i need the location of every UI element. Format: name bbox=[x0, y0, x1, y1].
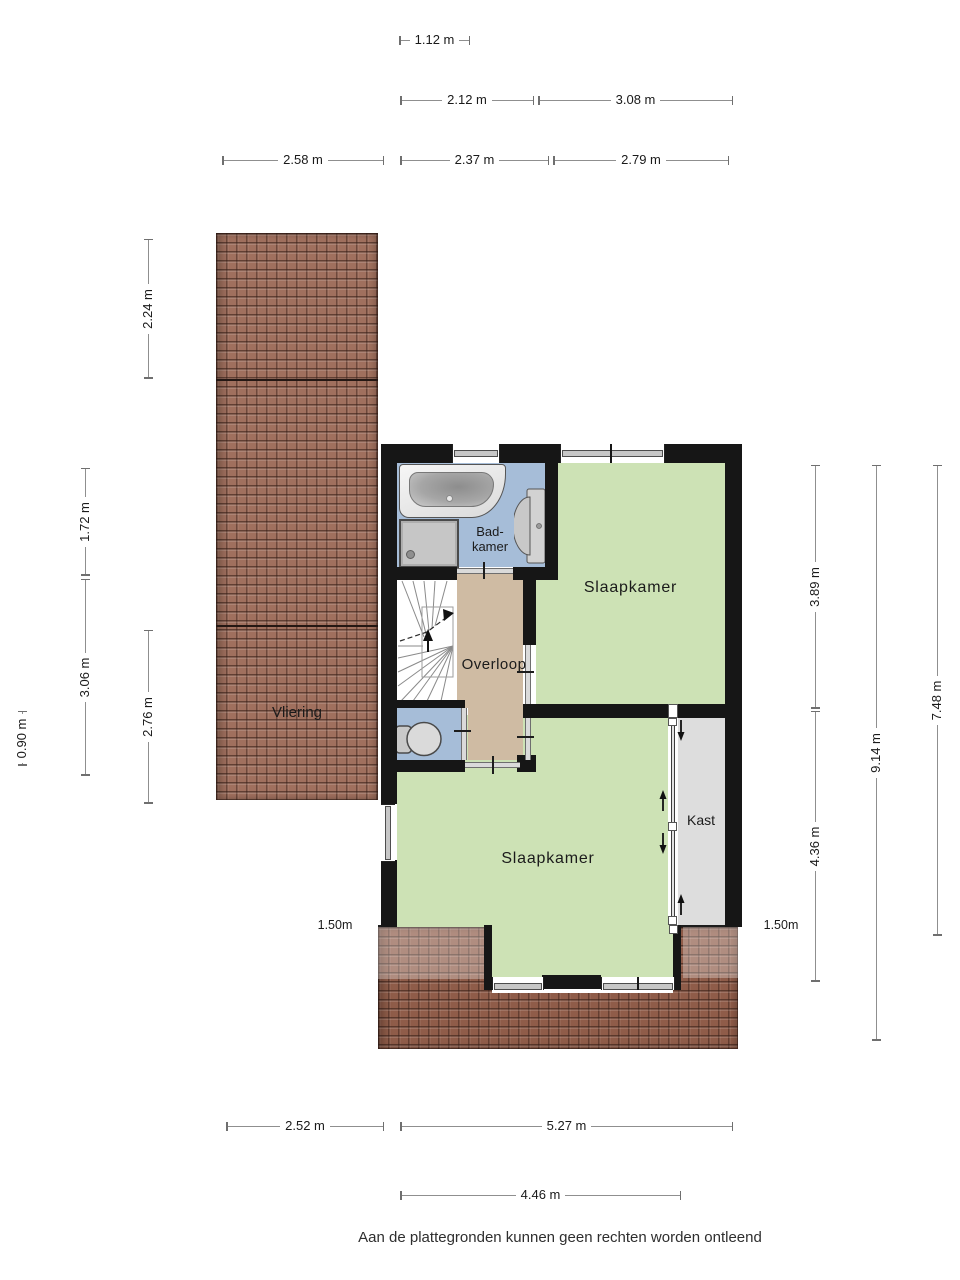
wall-badkamer-right bbox=[545, 463, 558, 580]
wall-toilet-bottom bbox=[381, 760, 465, 772]
room-label-kast: Kast bbox=[677, 812, 725, 828]
room-label-slaapkamer-boven: Slaapkamer bbox=[536, 579, 725, 597]
door-jamb-tick bbox=[483, 562, 485, 579]
room-label-vliering: Vliering bbox=[216, 704, 378, 721]
wall-left-upper bbox=[381, 444, 397, 804]
wall-right bbox=[725, 444, 742, 927]
dim-left-224: 2.24 m bbox=[142, 239, 154, 379]
wall-left-lower bbox=[381, 860, 397, 927]
dim-bottom-252: 2.52 m bbox=[226, 1120, 384, 1132]
slaapkamer-boven-door-opening bbox=[525, 645, 531, 704]
badkamer-window bbox=[452, 444, 500, 463]
dim-top-112: 1.12 m bbox=[399, 34, 470, 46]
dim-top-258: 2.58 m bbox=[222, 154, 384, 166]
room-label-overloop: Overloop bbox=[438, 656, 550, 673]
wall-bedroom-divider bbox=[523, 704, 742, 718]
dim-right-436: 4.36 m bbox=[809, 711, 821, 982]
bay-window-left bbox=[492, 977, 544, 990]
wall-badkamer-bottom-left bbox=[397, 567, 457, 580]
room-label-badkamer-line1: Bad- bbox=[443, 524, 537, 539]
room-slaapkamer-beneden-bay-floor bbox=[492, 925, 673, 977]
door-jamb-tick bbox=[517, 736, 534, 738]
dim-left-090: 0.90 m bbox=[16, 711, 28, 766]
room-label-slaapkamer-beneden: Slaapkamer bbox=[407, 850, 689, 868]
dim-left-276: 2.76 m bbox=[142, 630, 154, 804]
wall-overloop-right bbox=[523, 580, 536, 645]
door-jamb-tick bbox=[492, 756, 494, 774]
dim-bottom-446: 4.46 m bbox=[400, 1189, 681, 1201]
roof-highlight bbox=[378, 927, 484, 979]
arrow-up-icon bbox=[658, 789, 668, 813]
dim-top-237: 2.37 m bbox=[400, 154, 549, 166]
track-jamb bbox=[669, 925, 678, 934]
room-label-badkamer: Bad- kamer bbox=[443, 524, 537, 554]
toilet-door-opening bbox=[461, 708, 467, 760]
slaapkamer-beneden-door-opening bbox=[525, 718, 531, 760]
badkamer-door-opening bbox=[457, 568, 513, 574]
dim-left-306: 3.06 m bbox=[79, 579, 91, 776]
arrow-up-icon bbox=[676, 893, 686, 917]
dim-right-748: 7.48 m bbox=[931, 465, 943, 936]
sliding-door-panel bbox=[671, 831, 675, 916]
dim-top-308: 3.08 m bbox=[538, 94, 733, 106]
note-150m-left: 1.50m bbox=[307, 918, 363, 932]
toilet-icon bbox=[394, 716, 446, 760]
bathtub-icon bbox=[399, 464, 506, 518]
arrow-down-icon bbox=[676, 718, 686, 742]
dim-right-389: 3.89 m bbox=[809, 465, 821, 709]
roof-highlight bbox=[683, 927, 738, 978]
slaapkamer-boven-window bbox=[560, 444, 665, 463]
stairs-icon bbox=[397, 580, 455, 703]
wall-toilet-top bbox=[397, 700, 465, 708]
wall-bay-left bbox=[484, 925, 492, 990]
wall-bay-bottom-mid bbox=[542, 975, 601, 989]
dim-left-172: 1.72 m bbox=[79, 468, 91, 576]
disclaimer-text: Aan de plattegronden kunnen geen rechten… bbox=[160, 1229, 960, 1246]
slaapkamer-beneden-side-window bbox=[381, 804, 395, 862]
room-label-badkamer-line2: kamer bbox=[443, 539, 537, 554]
track-jamb bbox=[668, 704, 678, 718]
window-mullion bbox=[637, 977, 639, 990]
roof-divider-line bbox=[216, 625, 378, 627]
room-overloop-floor bbox=[457, 572, 523, 708]
roof-divider-line bbox=[216, 379, 378, 381]
door-jamb-tick bbox=[454, 730, 471, 732]
window-mullion bbox=[610, 444, 612, 463]
note-150m-right: 1.50m bbox=[753, 918, 809, 932]
dim-top-212: 2.12 m bbox=[400, 94, 534, 106]
dim-right-914: 9.14 m bbox=[870, 465, 882, 1041]
room-overloop-floor-lower bbox=[468, 708, 523, 760]
floorplan-canvas: Vliering Bad- kamer Slaapkamer Overloop … bbox=[0, 0, 960, 1280]
dim-bottom-527: 5.27 m bbox=[400, 1120, 733, 1132]
sliding-door-panel bbox=[671, 726, 675, 822]
dim-top-279: 2.79 m bbox=[553, 154, 729, 166]
